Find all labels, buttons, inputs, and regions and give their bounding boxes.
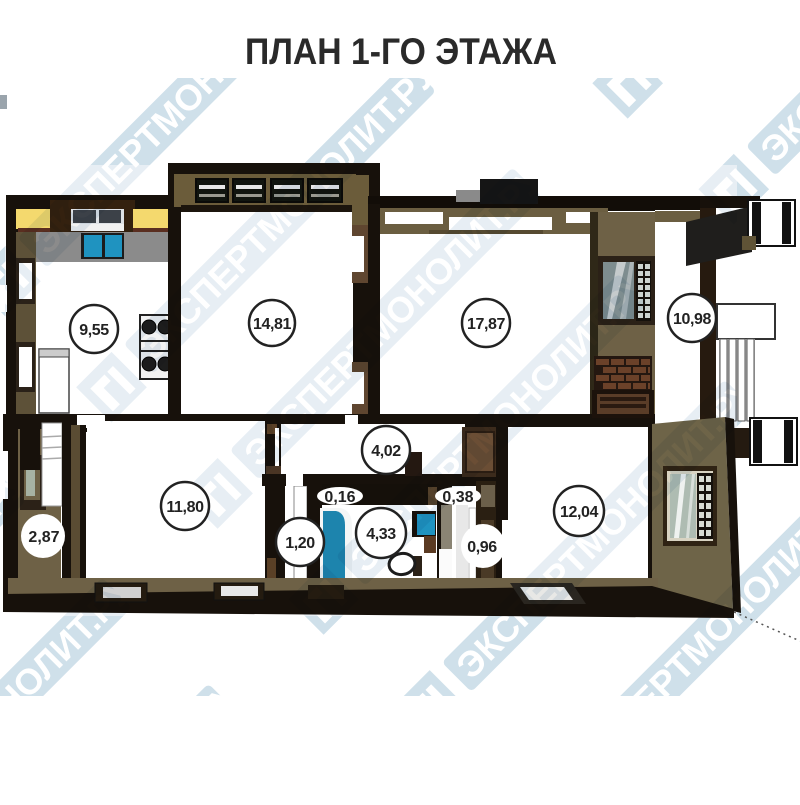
- svg-text:11,80: 11,80: [166, 499, 204, 516]
- svg-text:12,04: 12,04: [560, 504, 599, 521]
- svg-text:0,96: 0,96: [467, 539, 497, 556]
- svg-text:4,02: 4,02: [371, 443, 401, 460]
- svg-text:4,33: 4,33: [366, 526, 396, 543]
- svg-text:9,55: 9,55: [79, 322, 109, 339]
- svg-text:0,38: 0,38: [442, 489, 473, 506]
- svg-text:17,87: 17,87: [467, 316, 506, 333]
- svg-text:10,98: 10,98: [673, 311, 712, 328]
- svg-text:0,16: 0,16: [324, 489, 355, 506]
- svg-text:14,81: 14,81: [253, 316, 292, 333]
- svg-text:2,87: 2,87: [28, 529, 59, 546]
- svg-text:ПЛАН 1-ГО ЭТАЖА: ПЛАН 1-ГО ЭТАЖА: [245, 31, 557, 72]
- svg-text:1,20: 1,20: [285, 535, 315, 552]
